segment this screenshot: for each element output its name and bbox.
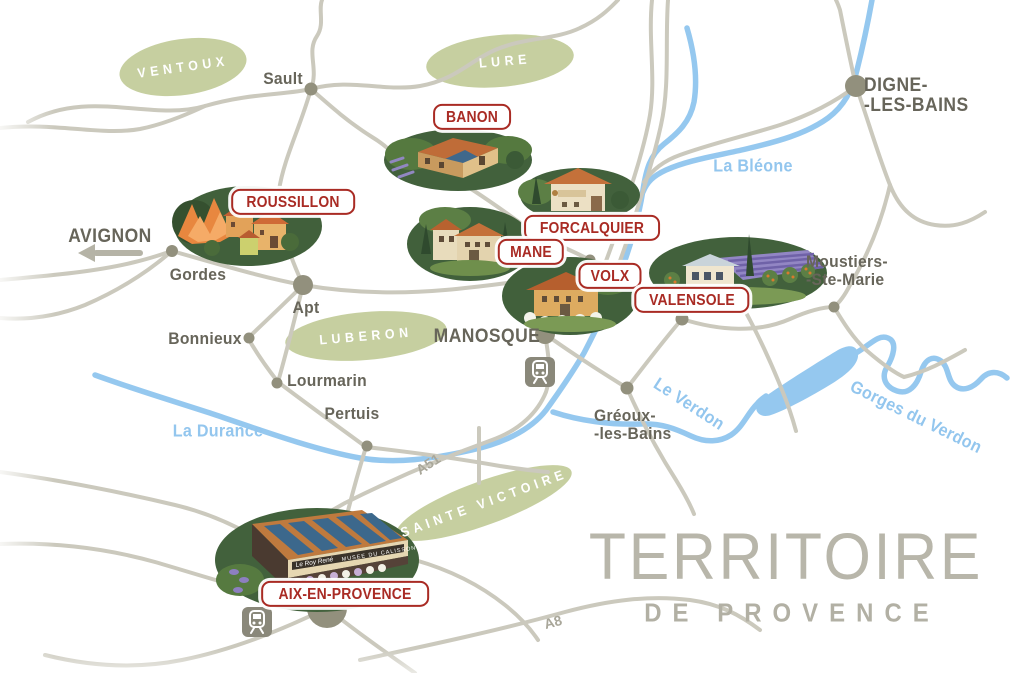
city-label-sault: Sault (263, 69, 303, 89)
city-dot-gordes (166, 245, 178, 257)
city-label-apt: Apt (293, 298, 320, 318)
city-dot-pertuis (362, 441, 373, 452)
edge-fade-left (0, 0, 55, 673)
city-dot-valensole (676, 313, 689, 326)
site-badge-forcalquier-label: FORCALQUIER (540, 219, 644, 238)
city-dot-greoux (621, 382, 634, 395)
city-label-digne-line2: -LES-BAINS (864, 96, 969, 116)
city-label-digne: DIGNE- -LES-BAINS (864, 76, 969, 116)
city-dot-lourmarin (272, 378, 283, 389)
city-dot-bonnieux (244, 333, 255, 344)
city-label-pertuis: Pertuis (325, 404, 380, 424)
city-label-bonnieux: Bonnieux (168, 329, 241, 349)
city-label-greoux-line2: -les-Bains (594, 425, 672, 443)
site-badge-aix[interactable]: AIX-EN-PROVENCE (261, 581, 429, 607)
site-badge-banon-label: BANON (446, 108, 498, 127)
site-badge-mane-label: MANE (510, 243, 552, 262)
river-label-durance: La Durance (173, 421, 263, 442)
edge-fade-bottom (0, 648, 1024, 673)
lake-sainte-croix (756, 346, 858, 416)
city-dot-apt (293, 275, 313, 295)
city-dot-moustiers (829, 302, 840, 313)
city-label-digne-line1: DIGNE- (864, 76, 969, 96)
city-label-lourmarin: Lourmarin (287, 371, 367, 391)
river-gorges-du-verdon (856, 337, 1007, 392)
direction-label-avignon: AVIGNON (68, 226, 152, 248)
site-badge-roussillon[interactable]: ROUSSILLON (231, 189, 355, 215)
city-label-greoux-line1: Gréoux- (594, 407, 672, 425)
train-station-icon-aix (242, 607, 272, 637)
map-title: TERRITOIRE (589, 518, 983, 594)
provence-map: Le Roy René MUSEE DU CALISSON VENTOUX LU… (0, 0, 1024, 673)
site-badge-aix-label: AIX-EN-PROVENCE (279, 585, 412, 604)
river-label-bleone: La Bléone (713, 156, 792, 177)
map-subtitle: DE PROVENCE (644, 598, 940, 629)
train-station-icon-manosque (525, 357, 555, 387)
site-badge-mane[interactable]: MANE (498, 239, 564, 265)
city-label-moustiers-line1: Moustiers- (806, 253, 888, 271)
site-badge-banon[interactable]: BANON (433, 104, 511, 130)
city-label-moustiers-line2: -Ste-Marie (806, 271, 888, 289)
site-badge-volx[interactable]: VOLX (578, 263, 641, 289)
site-badge-valensole-label: VALENSOLE (649, 291, 735, 310)
city-label-greoux: Gréoux- -les-Bains (594, 407, 672, 443)
site-badge-volx-label: VOLX (591, 267, 630, 286)
city-label-manosque: MANOSQUE (434, 326, 541, 348)
site-badge-forcalquier[interactable]: FORCALQUIER (524, 215, 660, 241)
site-badge-valensole[interactable]: VALENSOLE (634, 287, 749, 313)
city-dot-sault (305, 83, 318, 96)
city-label-gordes: Gordes (170, 265, 226, 285)
site-badge-roussillon-label: ROUSSILLON (246, 193, 339, 212)
banon-illustration[interactable] (384, 129, 532, 191)
city-label-moustiers: Moustiers- -Ste-Marie (806, 253, 888, 289)
